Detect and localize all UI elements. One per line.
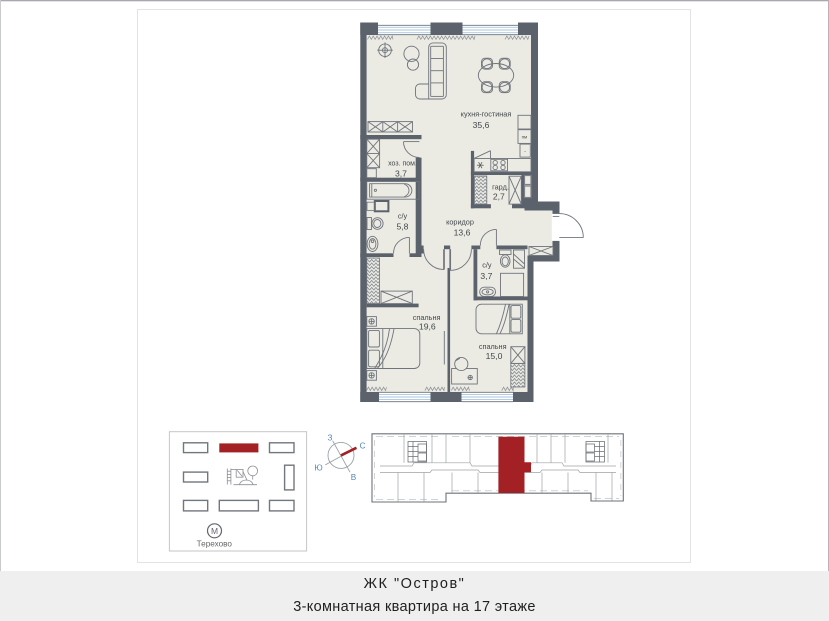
svg-text:М: М [211, 526, 218, 536]
svg-text:-: - [524, 149, 526, 155]
svg-text:С: С [360, 441, 366, 450]
svg-text:3,7: 3,7 [395, 169, 407, 179]
svg-text:кухня-гостиная: кухня-гостиная [461, 109, 512, 118]
svg-text:35,6: 35,6 [473, 120, 490, 130]
svg-text:гард.: гард. [492, 182, 509, 191]
svg-text:2,7: 2,7 [493, 192, 505, 202]
svg-text:15,0: 15,0 [486, 351, 503, 361]
svg-text:Ю: Ю [314, 464, 322, 473]
svg-text:З: З [328, 434, 333, 443]
svg-text:коридор: коридор [446, 218, 474, 227]
svg-text:Терехово: Терехово [197, 539, 233, 548]
svg-text:19,6: 19,6 [419, 321, 436, 331]
svg-text:3-комнатная квартира на 17 эта: 3-комнатная квартира на 17 этаже [293, 599, 536, 615]
svg-text:13,6: 13,6 [454, 227, 471, 237]
svg-text:с/у: с/у [482, 261, 492, 270]
svg-text:с/у: с/у [398, 212, 408, 221]
svg-text:5,8: 5,8 [397, 221, 409, 231]
svg-text:спальня: спальня [479, 342, 507, 351]
svg-text:В: В [351, 473, 357, 482]
svg-text:хоз. пом.: хоз. пом. [388, 161, 417, 168]
svg-text:ЖК "Остров": ЖК "Остров" [364, 576, 466, 592]
svg-text:пм: пм [522, 135, 528, 140]
svg-text:3,7: 3,7 [480, 271, 492, 281]
